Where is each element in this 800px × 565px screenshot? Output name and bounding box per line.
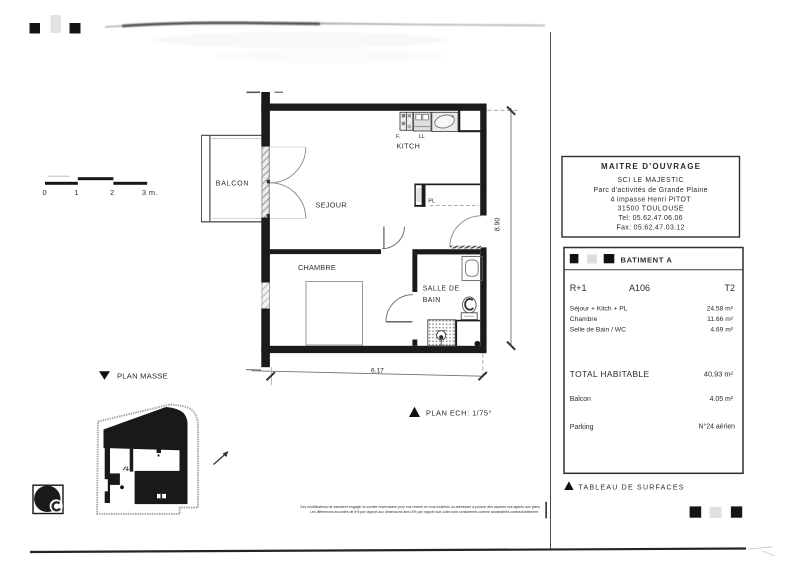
svg-text:F.: F. <box>396 134 401 140</box>
svg-text:MAITRE D'OUVRAGE: MAITRE D'OUVRAGE <box>601 162 701 171</box>
svg-text:Chambre: Chambre <box>570 316 598 323</box>
svg-text:Balcon: Balcon <box>570 396 591 403</box>
svg-text:8.90: 8.90 <box>495 218 502 232</box>
svg-text:PL: PL <box>428 198 435 204</box>
svg-text:PLAN ECH: 1/75°: PLAN ECH: 1/75° <box>426 408 492 417</box>
svg-text:Ces modifications ne sauraient: Ces modifications ne sauraient engager l… <box>300 505 540 509</box>
svg-text:N°24 aérien: N°24 aérien <box>699 422 736 430</box>
svg-text:Les differences accordes de 5%: Les differences accordes de 5% par rappo… <box>310 510 538 514</box>
svg-text:KITCH: KITCH <box>397 142 421 151</box>
svg-text:4.05 m²: 4.05 m² <box>710 396 734 403</box>
svg-text:31500 TOULOUSE: 31500 TOULOUSE <box>618 206 684 213</box>
svg-text:40,93 m²: 40,93 m² <box>704 369 734 378</box>
svg-text:24.58 m²: 24.58 m² <box>707 306 734 313</box>
svg-text:Séjour + Kitch + PL: Séjour + Kitch + PL <box>570 306 628 313</box>
svg-text:Fax: 05.62.47.03.12: Fax: 05.62.47.03.12 <box>617 225 685 232</box>
svg-text:SEJOUR: SEJOUR <box>316 201 348 210</box>
svg-text:CHAMBRE: CHAMBRE <box>298 263 336 272</box>
svg-text:Parking: Parking <box>570 424 594 431</box>
svg-text:2: 2 <box>110 188 114 197</box>
svg-text:3 m.: 3 m. <box>142 188 158 197</box>
svg-text:11.66 m²: 11.66 m² <box>707 316 734 323</box>
svg-text:4.69 m²: 4.69 m² <box>710 327 733 334</box>
svg-text:BAIN: BAIN <box>423 297 441 304</box>
svg-text:TABLEAU DE SURFACES: TABLEAU DE SURFACES <box>579 485 685 492</box>
svg-text:6.17: 6.17 <box>371 367 384 374</box>
svg-text:SALLE DE: SALLE DE <box>423 286 460 293</box>
svg-text:Selle de Bain / WC: Selle de Bain / WC <box>570 327 626 334</box>
svg-text:Tel: 05.62.47.06.06: Tel: 05.62.47.06.06 <box>619 215 683 222</box>
svg-text:LL: LL <box>419 134 425 140</box>
svg-text:Parc d'activités de Grande Pla: Parc d'activités de Grande Plaine <box>594 187 708 194</box>
svg-text:TOTAL HABITABLE: TOTAL HABITABLE <box>570 369 650 379</box>
svg-text:1: 1 <box>75 188 79 197</box>
svg-text:R+1: R+1 <box>570 283 587 293</box>
svg-text:0: 0 <box>43 188 47 197</box>
svg-text:4 impasse Henri PITOT: 4 impasse Henri PITOT <box>611 196 692 203</box>
svg-text:SCI LE MAJESTIC: SCI LE MAJESTIC <box>618 177 684 184</box>
svg-text:BALCON: BALCON <box>216 181 249 188</box>
svg-text:BATIMENT A: BATIMENT A <box>621 256 673 265</box>
svg-text:T2: T2 <box>725 283 736 293</box>
svg-text:PLAN MASSE: PLAN MASSE <box>117 372 168 381</box>
svg-text:A106: A106 <box>629 283 650 293</box>
